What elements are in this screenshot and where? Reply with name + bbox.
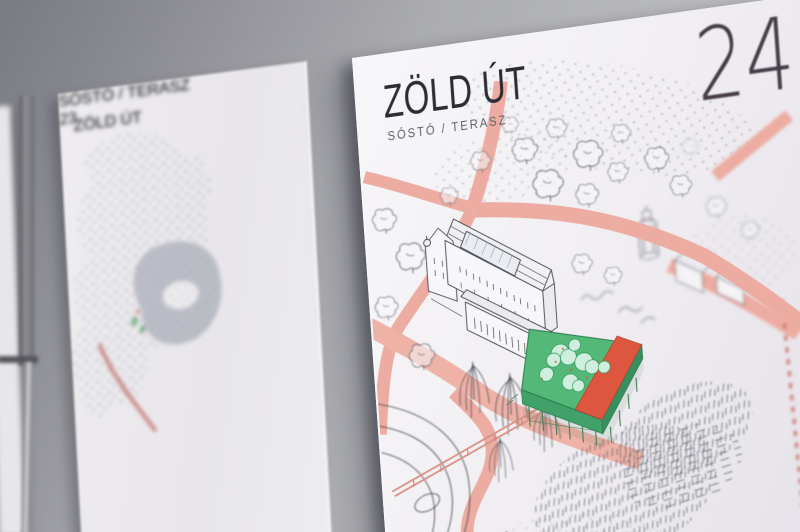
annotation-squiggles — [581, 285, 655, 332]
photo-scene: ZÖLD ÚT SÓSTÓ / TERASZ 23 — [0, 0, 800, 532]
display-stand-pole — [19, 96, 34, 366]
body-text-line — [77, 450, 111, 454]
poster-panel-24: ZÖLD ÚT SÓSTÓ / TERASZ 24 — [352, 0, 800, 532]
body-text-line — [77, 452, 99, 455]
footnote-line — [77, 452, 97, 455]
panel-23-content: ZÖLD ÚT SÓSTÓ / TERASZ 23 — [58, 62, 336, 532]
panel-24-number: 24 — [691, 0, 800, 125]
poster-panel-23: ZÖLD ÚT SÓSTÓ / TERASZ 23 — [58, 61, 338, 532]
footnote-line — [77, 451, 105, 455]
body-text-line — [77, 448, 123, 454]
panel-23-site-map — [60, 108, 246, 450]
